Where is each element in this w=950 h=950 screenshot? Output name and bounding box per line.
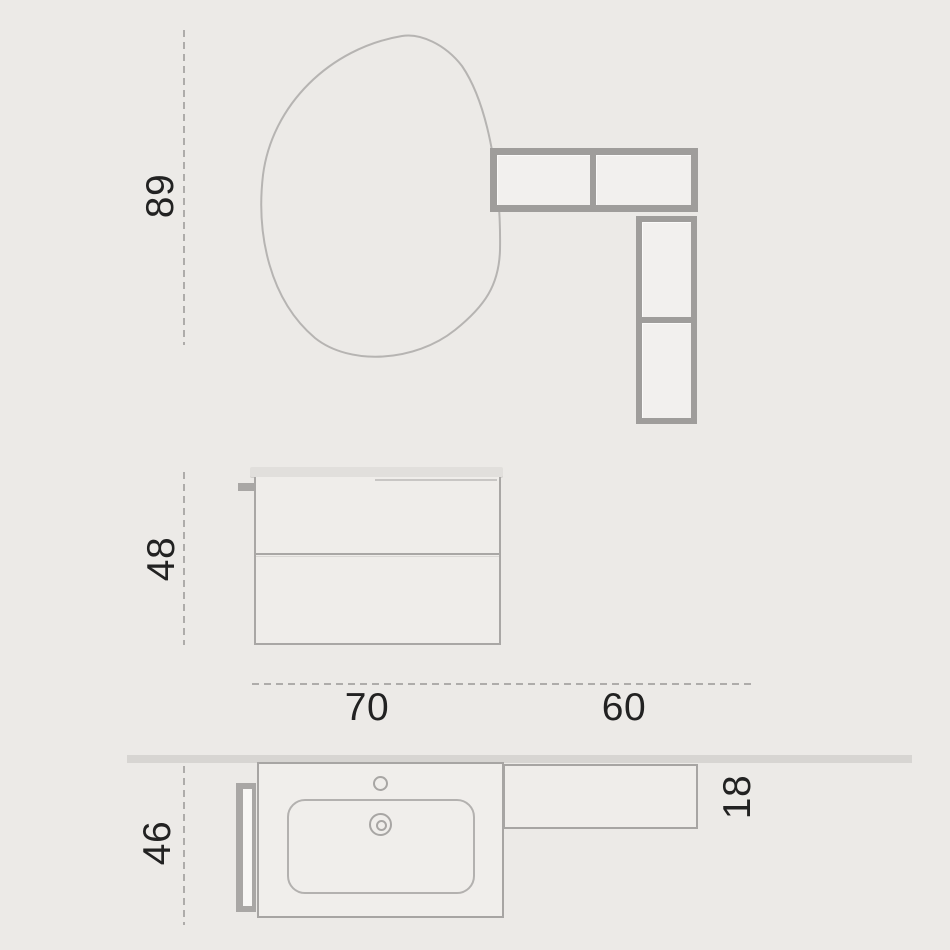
wall-shelf-horizontal — [490, 148, 698, 212]
shelf-compartment — [642, 222, 691, 317]
drawer-divider-highlight — [256, 556, 499, 557]
towel-bar-top-view — [236, 783, 256, 912]
vanity-cabinet-front-view — [254, 477, 501, 645]
wall-line — [127, 755, 912, 763]
shelf-compartment — [497, 155, 590, 205]
washbasin-top-view — [257, 762, 504, 918]
shelf-compartment — [596, 155, 691, 205]
dimension-cabinet-height: 48 — [139, 514, 185, 604]
dimension-shelf-depth: 18 — [715, 752, 761, 842]
drawer-gap-line — [375, 479, 497, 481]
countertop-front-view — [250, 467, 503, 477]
drain-hole-inner — [376, 820, 387, 831]
drain-hole — [369, 813, 392, 836]
side-unit-top-view — [503, 764, 698, 829]
shelf-compartment — [642, 323, 691, 418]
drawer-divider-line — [256, 553, 499, 555]
dimension-cabinet-width: 70 — [322, 685, 412, 731]
dimension-side-unit-width: 60 — [579, 685, 669, 731]
dimension-mirror-height: 89 — [138, 151, 184, 241]
dimension-cabinet-depth: 46 — [135, 798, 181, 888]
towel-bar-rail — [243, 789, 252, 906]
wall-bracket-front — [238, 483, 255, 491]
faucet-hole — [373, 776, 388, 791]
technical-drawing-canvas: 89 48 70 60 46 18 — [0, 0, 950, 950]
mirror-outline — [261, 36, 500, 357]
wall-shelf-vertical — [636, 216, 697, 424]
